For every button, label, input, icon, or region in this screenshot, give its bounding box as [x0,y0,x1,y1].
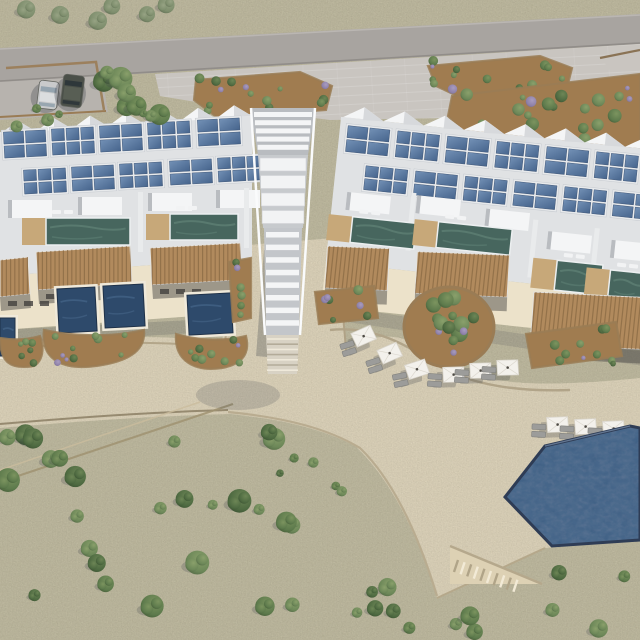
bush [74,469,85,480]
solar-cell [192,172,213,184]
terrace-wood-deck [326,214,353,242]
solar-cell [53,168,66,180]
solar-cell [592,203,606,215]
garden-shrub [330,317,336,323]
solar-array [49,125,97,157]
tower-ladder-frame [264,228,302,335]
solar-cell [410,146,424,159]
solar-cell [494,179,508,191]
bush [96,556,105,565]
solar-cell [437,173,458,186]
plunge-pool [187,293,233,335]
lavender-shrub [450,349,456,355]
lavender-shrub [430,65,434,69]
solar-cell [218,170,231,182]
tower-slat [266,232,299,238]
bush [97,14,106,23]
solar-cell [468,138,489,152]
solar-cell [191,159,212,171]
lavender-shrub [64,357,68,361]
bush [76,511,83,518]
plunge-pool [103,284,145,328]
garden-shrub [461,88,473,100]
bush [386,580,395,589]
lavender-shrub [460,327,468,335]
solar-cell [149,162,162,174]
bush [357,609,362,614]
solar-cell [513,194,534,207]
garden-shrub [453,66,460,73]
tower-slat [257,137,310,142]
solar-cell [177,121,190,134]
bush [341,487,346,492]
garden-shrub [278,86,283,91]
solar-cell [612,205,633,218]
solar-cell [53,181,66,193]
garden-shrub [442,321,455,334]
bush [372,587,378,593]
garden-shrub [237,311,243,317]
solar-array [511,179,560,212]
bush [552,605,559,612]
solar-cell [426,134,440,147]
solar-cell [3,131,24,144]
bush [292,599,299,606]
bush [143,111,147,115]
solar-cell [26,144,47,157]
solar-cell [509,157,523,170]
solar-cell [415,171,436,184]
solar-cell [467,152,488,166]
lavender-shrub [54,359,61,366]
garden-shrub [448,312,457,321]
sun-lounger [531,431,545,437]
solar-cell [446,136,467,150]
solar-cell [380,167,394,179]
solar-array [492,139,541,174]
solar-cell [233,170,246,182]
bush [285,514,295,524]
canopy-shade-edge [148,193,152,211]
solar-cell [610,153,624,166]
solar-cell [544,160,565,174]
solar-cell [120,176,133,188]
solar-array [21,166,68,196]
garden-shrub [195,73,205,83]
solar-cell [134,163,147,175]
unit-divider-wall [138,192,143,252]
bush [558,567,566,575]
solar-cell [100,139,121,152]
solar-cell [564,187,578,199]
bush [469,609,478,618]
solar-array [167,157,214,187]
garden-shrub [578,123,589,134]
garden-shrub [555,90,567,102]
garden-shrub [18,341,23,346]
lavender-shrub [448,84,457,93]
garden-shrub [544,63,552,71]
tower-slat [266,308,299,314]
garden-shrub [592,93,605,106]
bush [393,605,400,612]
tower-skylight [260,158,306,171]
bush [7,431,15,439]
bush [59,452,67,460]
tower-slat [266,257,299,263]
solar-cell [593,190,607,202]
solar-cell [546,147,567,161]
tower-slat [266,245,299,251]
terrace-wood-deck [530,258,557,290]
sun-lounger [532,424,546,430]
garden-shrub [248,91,254,97]
solar-cell [395,145,409,158]
solar-cell [81,141,94,154]
solar-cell [364,179,378,191]
terrace-lounger [64,210,73,214]
bush [294,455,299,460]
solar-cell [562,200,576,212]
solar-cell [71,166,92,178]
bush [474,626,482,634]
solar-cell [378,180,392,192]
round-planter [404,287,494,367]
solar-cell [148,136,161,149]
tower-slat [256,128,310,133]
bush [151,597,162,608]
garden-shrub [610,361,616,367]
solar-cell [393,182,407,194]
solar-cell [524,158,538,171]
solar-cell [93,165,114,177]
terrace-canopy [216,190,260,208]
lavender-shrub [625,86,630,91]
bush [59,111,63,115]
solar-cell [568,149,589,163]
resort-aerial-render [0,0,640,640]
garden-shrub [52,333,59,340]
garden-shrub [601,324,610,333]
garden-shrub [262,96,271,105]
garden-shrub [448,336,458,346]
solar-array [343,123,392,158]
bush [184,492,193,501]
solar-cell [625,155,639,168]
solar-cell [413,184,434,197]
bush [238,492,250,504]
solar-cell [634,207,640,220]
garden-shrub [92,332,100,340]
solar-cell [536,184,557,197]
lavender-shrub [218,87,224,93]
garden-shrub [580,104,590,114]
solar-cell [424,148,438,161]
solar-cell [464,176,478,188]
bush [280,470,284,474]
shaded-furniture [160,289,169,294]
solar-array [610,190,640,223]
garden-shrub [30,359,38,367]
solar-cell [623,169,637,182]
solar-cell [99,125,120,138]
solar-cell [394,169,408,181]
sun-lounger [454,377,468,383]
solar-cell [198,133,219,146]
canopy-shade-edge [216,190,220,208]
solar-cell [614,192,635,205]
solar-cell [511,143,525,156]
shaded-furniture [46,294,55,299]
bush [313,459,318,464]
garden-shrub [428,56,438,66]
rooftop-lap-pool [170,214,238,240]
solar-cell [367,142,388,156]
bush [268,426,276,434]
tower-slat [255,120,311,125]
garden-shrub [221,357,229,365]
garden-shrub [237,302,245,310]
bush [105,578,113,586]
terrace-lounger [176,206,185,210]
garden-shrub [188,349,193,354]
solar-cell [67,142,80,155]
solar-cell [411,132,425,145]
solar-cell [177,135,190,148]
lavender-shrub [321,82,329,90]
bush [111,0,119,8]
bush [159,107,170,118]
garden-shrub [28,339,36,347]
solar-cell [217,157,230,169]
bush [25,3,34,12]
solar-cell [535,197,556,210]
bush [374,602,382,610]
sun-lounger [481,374,495,380]
solar-array [69,163,116,193]
solar-cell [345,140,366,154]
solar-cell [163,136,176,149]
garden-shrub [197,355,206,364]
shaded-furniture [24,301,33,306]
sun-lounger [560,426,574,432]
tower-shadow-pool [196,380,280,410]
solar-cell [365,166,379,178]
bush [120,70,132,82]
solar-cell [197,119,218,132]
garden-shrub [122,332,128,338]
shaded-furniture [176,289,185,294]
garden-shrub [614,92,623,101]
solar-cell [514,181,535,194]
garden-shrub [608,109,622,123]
solar-cell [566,163,587,177]
solar-array [361,164,410,197]
solar-cell [435,186,456,199]
solar-array [195,116,243,148]
garden-shrub [550,340,560,350]
solar-cell [525,144,539,157]
solar-array [592,150,640,185]
garden-shrub [206,102,213,109]
terrace-canopy [78,197,122,215]
tower-slat [266,320,299,326]
garden-shrub [229,336,237,344]
bush [259,505,265,511]
solar-array [117,160,164,190]
lavender-shrub [236,343,241,348]
shaded-furniture [8,301,17,306]
terrace-lounger [52,210,61,214]
terrace-canopy [148,193,192,211]
solar-cell [4,145,25,158]
plunge-pool-group [54,284,101,336]
bush [212,501,217,506]
bush [160,503,166,509]
bush [409,623,415,629]
solar-cell [135,176,148,188]
plunge-pool [57,287,97,333]
bush [59,8,68,17]
tower-slat [266,282,299,288]
bush [106,67,113,74]
solar-cell [219,118,240,131]
solar-array [542,144,591,179]
solar-array [97,122,145,154]
bush [126,86,135,95]
plunge-pool-group [184,290,236,339]
solar-cell [94,178,115,190]
solar-cell [170,173,191,185]
solar-array [560,184,609,217]
garden-shrub [236,359,243,366]
solar-cell [578,188,592,200]
sun-lounger [455,369,469,375]
solar-cell [51,128,64,141]
solar-array [443,134,492,169]
bush [16,122,22,128]
lavender-shrub [627,96,633,102]
canopy-shade-edge [8,200,12,218]
lavender-shrub [581,356,585,360]
canopy-shade-edge [78,197,82,215]
solar-cell [149,175,162,187]
bush [174,437,180,443]
bush [136,98,146,108]
bush [264,599,274,609]
solar-cell [52,142,65,155]
solar-cell [495,155,509,168]
tower-slat [266,270,299,276]
garden-shrub [237,291,245,299]
solar-cell [38,169,51,181]
solar-cell [169,160,190,172]
solar-cell [24,182,37,194]
rooftop-lap-pool [46,218,130,245]
garden-shrub [353,285,363,295]
solar-cell [122,138,143,151]
garden-shrub [317,99,325,107]
terrace-wood-deck [22,218,46,245]
bush [34,591,40,597]
solar-array [1,128,49,160]
garden-shrub [70,354,78,362]
tower-skylight [262,211,304,224]
bush [89,542,98,551]
bush [36,105,41,110]
bush [624,572,630,578]
garden-shrub [438,292,454,308]
solar-cell [72,179,93,191]
solar-cell [39,182,52,194]
solar-cell [463,189,477,201]
lavender-shrub [526,96,537,107]
garden-shrub [118,352,123,357]
garden-shrub [592,119,604,131]
solar-cell [232,157,245,169]
plunge-pool-group [100,281,148,331]
solar-array [145,119,193,151]
garden-shrub [593,350,601,358]
bush [32,431,42,441]
lavender-shrub [60,353,65,358]
solar-cell [479,178,493,190]
bush [150,111,156,117]
garden-shrub [207,350,215,358]
solar-cell [478,191,492,203]
garden-shrub [576,340,584,348]
solar-array [393,129,442,164]
lavender-shrub [234,265,241,272]
sun-lounger [428,373,442,379]
tower-slat [254,112,312,117]
unit-divider-wall [244,188,249,248]
garden-shrub [468,312,479,323]
solar-cell [369,128,390,142]
garden-shrub [27,347,33,353]
garden-shrub [430,80,438,88]
solar-cell [119,163,132,175]
garden-shrub [18,353,25,360]
garden-shrub [195,345,203,353]
garden-shrub [542,97,555,110]
solar-cell [492,192,506,204]
lavender-shrub [324,294,331,301]
garden-shrub [227,78,236,87]
bush [335,483,339,487]
garden-shrub [512,103,524,115]
sun-lounger [427,381,441,387]
tower-slat [258,145,309,150]
solar-cell [496,141,510,154]
tower-slat [266,295,299,301]
garden-shrub [520,95,526,101]
terrace-wood-deck [146,214,170,240]
tower-skylight [261,176,306,189]
terrace-canopy [8,200,52,218]
solar-array [461,174,510,207]
bush [598,622,607,631]
garden-shrub [191,354,199,362]
garden-shrub [236,283,244,291]
garden-shrub [561,350,570,359]
garden-shrub [483,75,492,84]
bush [196,554,208,566]
garden-shrub [559,76,565,82]
solar-cell [220,132,241,145]
solar-cell [121,124,142,137]
sun-lounger [482,366,496,372]
